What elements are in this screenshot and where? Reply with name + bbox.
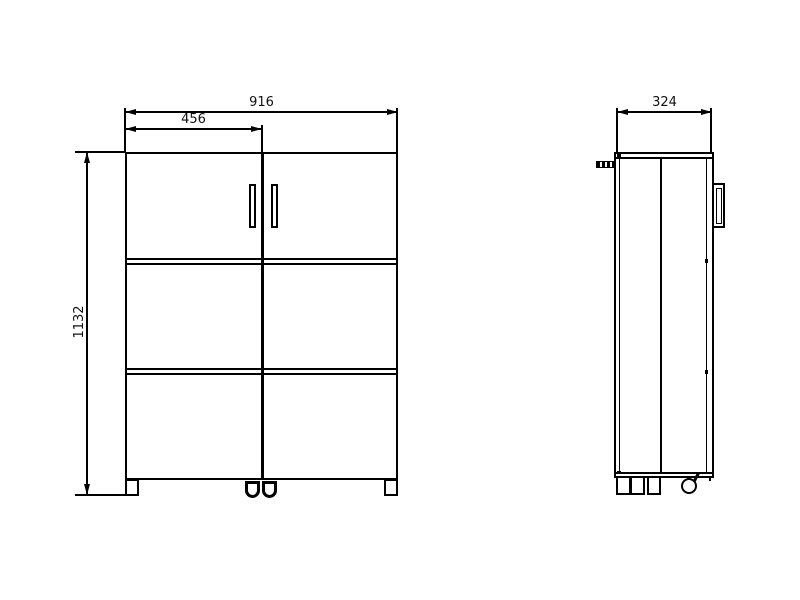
door-handle-right (271, 184, 278, 228)
side-middle-panel-line (660, 157, 662, 474)
dimension-line (617, 111, 712, 113)
back-bracket-hinge (596, 161, 615, 168)
drawing-canvas: 916 456 1132 (0, 0, 800, 600)
side-front-panel-line (706, 157, 707, 474)
dimension-depth-label: 324 (617, 96, 712, 110)
dimension-overall-height-label: 1132 (60, 302, 100, 342)
side-door-handle-inner (716, 188, 722, 224)
side-caster-wheel (681, 478, 697, 494)
side-foot (647, 476, 661, 495)
caster-mount (709, 476, 711, 481)
side-cabinet-body (614, 152, 714, 478)
dimension-line (125, 128, 262, 130)
shelf-tick (705, 259, 708, 263)
arrowhead-up-icon (84, 152, 90, 163)
front-center-door-divider (261, 152, 264, 480)
side-foot (630, 476, 645, 495)
screw-dot (617, 154, 621, 157)
dimension-overall-width-label: 916 (125, 96, 398, 110)
front-foot-right (384, 479, 398, 496)
side-back-panel-line (619, 157, 620, 474)
front-caster-right (262, 481, 277, 498)
shelf-tick (705, 370, 708, 374)
side-foot (616, 476, 631, 495)
side-top-panel-line (616, 157, 712, 159)
dimension-door-width-label: 456 (125, 113, 262, 127)
extension-line (75, 151, 125, 153)
screw-dot (617, 471, 621, 474)
door-handle-left (249, 184, 256, 228)
arrowhead-down-icon (84, 484, 90, 495)
front-caster-left (245, 481, 260, 498)
